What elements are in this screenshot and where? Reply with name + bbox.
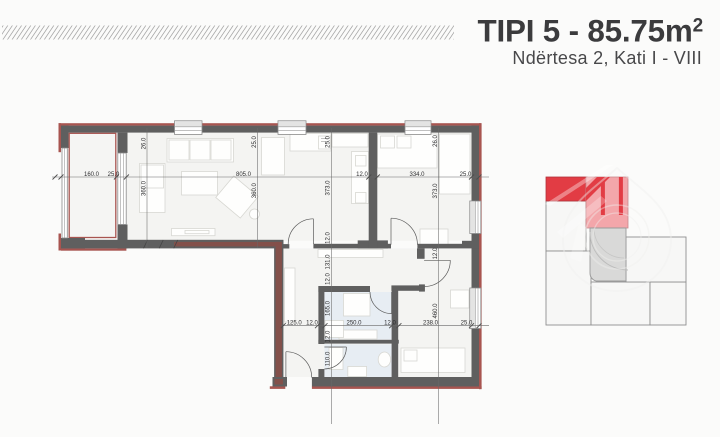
svg-text:25.0: 25.0 [326, 136, 332, 148]
svg-text:238.0: 238.0 [423, 321, 439, 327]
svg-text:373.0: 373.0 [326, 180, 332, 196]
svg-text:25.0: 25.0 [108, 172, 120, 178]
svg-text:26.0: 26.0 [141, 137, 147, 149]
svg-text:250.0: 250.0 [346, 321, 362, 327]
svg-text:131.0: 131.0 [326, 254, 332, 270]
svg-text:12.0: 12.0 [306, 321, 318, 327]
svg-text:125.0: 125.0 [287, 321, 303, 327]
svg-text:360.0: 360.0 [252, 183, 258, 199]
svg-text:360.0: 360.0 [141, 180, 147, 196]
svg-text:12.0: 12.0 [326, 273, 332, 285]
svg-text:26.0: 26.0 [433, 135, 439, 147]
svg-text:25.0: 25.0 [460, 172, 472, 178]
svg-text:TIPI 5 - 85.75m2: TIPI 5 - 85.75m2 [478, 14, 703, 49]
svg-text:460.0: 460.0 [433, 303, 439, 319]
svg-text:12.0: 12.0 [384, 321, 396, 327]
svg-text:334.0: 334.0 [409, 172, 425, 178]
svg-text:160.0: 160.0 [84, 172, 100, 178]
svg-text:12.0: 12.0 [326, 330, 332, 342]
svg-text:Ndërtesa 2, Kati I - VIII: Ndërtesa 2, Kati I - VIII [512, 48, 702, 68]
svg-text:25.0: 25.0 [461, 321, 473, 327]
svg-text:373.0: 373.0 [433, 183, 439, 199]
svg-text:12.0: 12.0 [356, 172, 368, 178]
svg-text:12.0: 12.0 [433, 247, 439, 259]
svg-text:110.0: 110.0 [326, 351, 332, 366]
svg-text:165.0: 165.0 [326, 300, 332, 316]
svg-text:805.0: 805.0 [236, 172, 252, 178]
svg-text:12.0: 12.0 [326, 232, 332, 244]
svg-text:25.0: 25.0 [252, 136, 258, 148]
